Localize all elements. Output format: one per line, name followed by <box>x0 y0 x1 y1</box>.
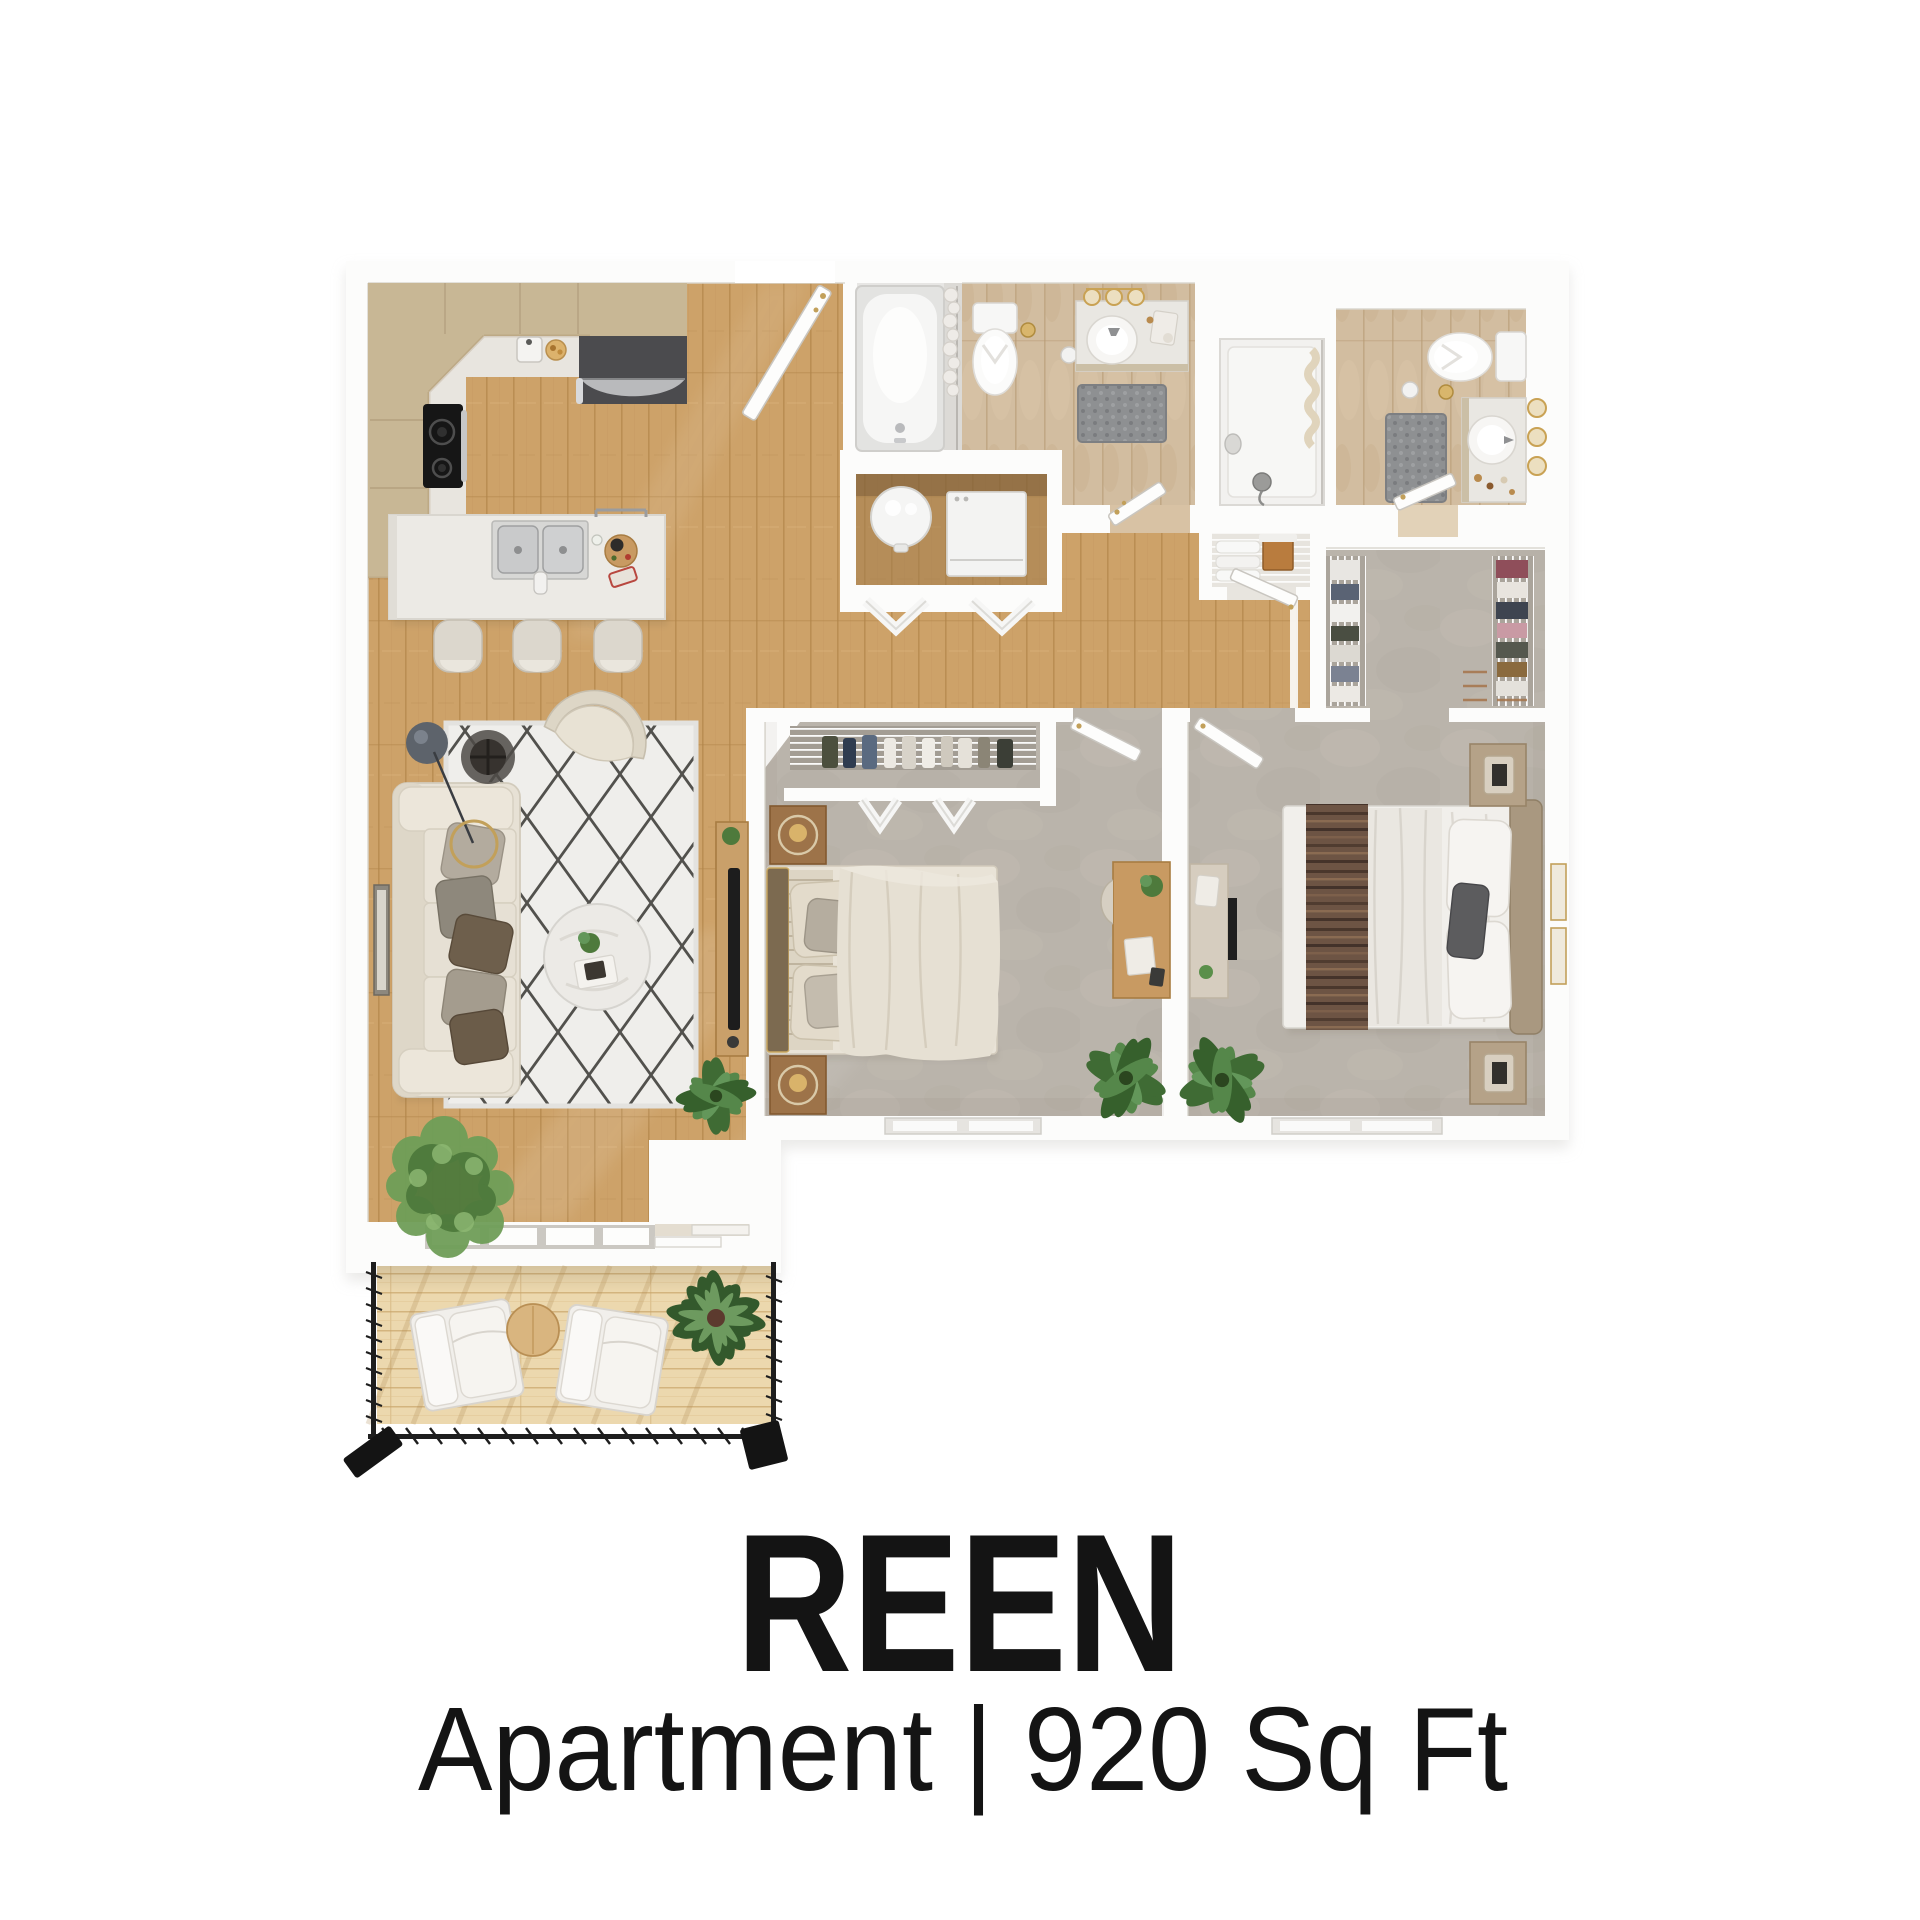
svg-text:REEN: REEN <box>736 1493 1183 1713</box>
svg-text:Apartment | 920 Sq Ft: Apartment | 920 Sq Ft <box>418 1683 1508 1816</box>
